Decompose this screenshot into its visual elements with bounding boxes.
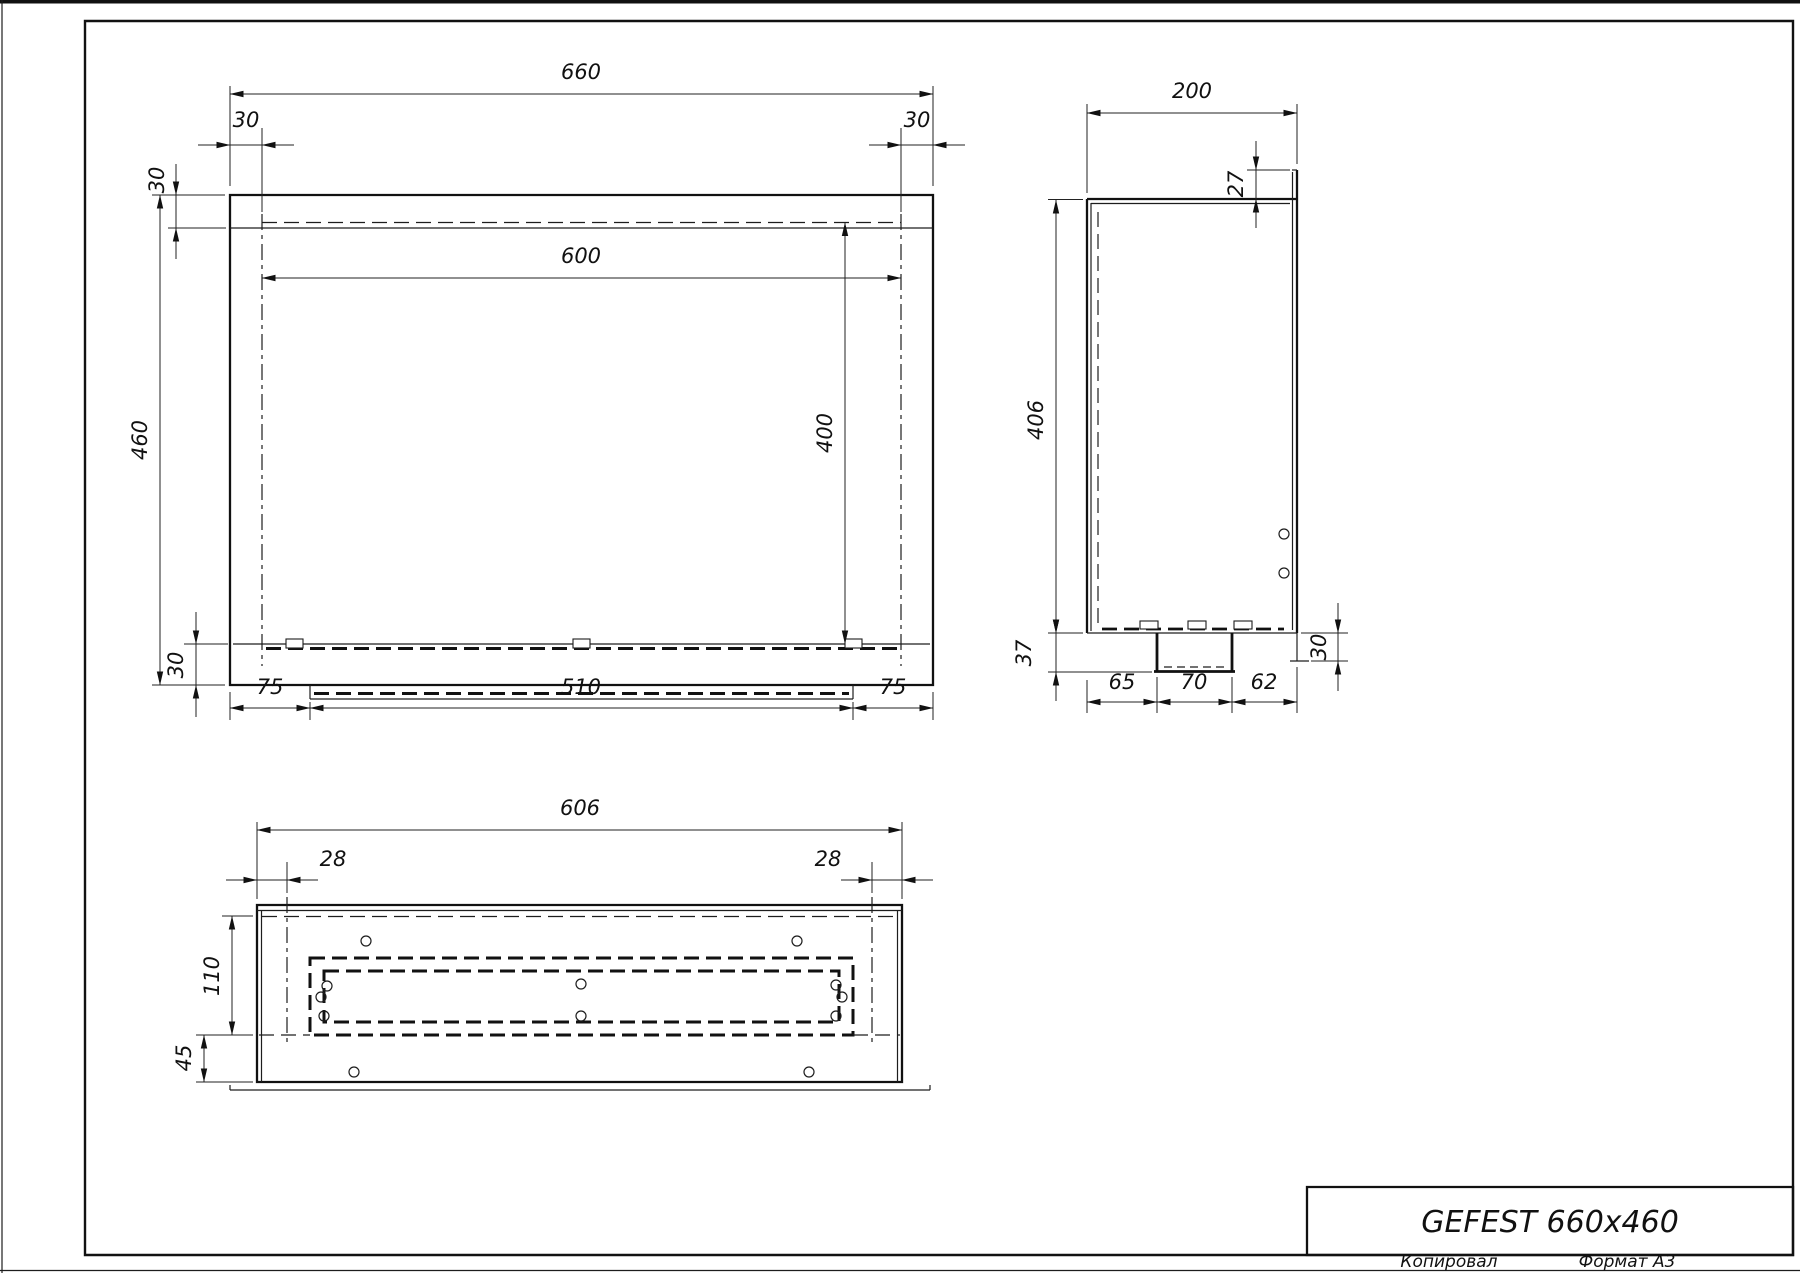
- dim-side-flange-drop: 30: [1307, 634, 1331, 661]
- dim-side-overall-depth: 200: [1172, 79, 1212, 103]
- bottom-extension-lines: [196, 822, 902, 1082]
- front-shelf-tab-left: [286, 639, 303, 648]
- dim-side-lip-height: 27: [1224, 170, 1248, 197]
- side-tab-2: [1188, 621, 1206, 629]
- bottom-dimensions: 606 28 28 110 45: [172, 796, 933, 1082]
- dim-bottom-front-band: 45: [172, 1045, 196, 1072]
- side-hole-lower: [1279, 568, 1289, 578]
- side-view: 200 27 406 37 65 70 62 30: [1012, 79, 1348, 713]
- front-dimensions: 660 30 30 30 600 460 400 30 75: [128, 60, 965, 717]
- front-extension-lines: [152, 86, 933, 720]
- dim-front-opening-width: 600: [561, 244, 601, 268]
- dim-bottom-offset-left: 28: [320, 847, 347, 871]
- dim-bottom-flange-width: 606: [560, 796, 600, 820]
- dim-front-offset-bottom: 30: [164, 652, 188, 679]
- dim-front-tray-width: 510: [561, 675, 601, 699]
- front-view: 660 30 30 30 600 460 400 30 75: [128, 60, 965, 720]
- dim-bottom-opening-depth: 110: [200, 956, 224, 996]
- dim-front-opening-height: 400: [813, 413, 837, 453]
- dim-side-bottom-front: 65: [1109, 670, 1136, 694]
- side-dimensions: 200 27 406 37 65 70 62 30: [1012, 79, 1338, 702]
- dim-front-bottom-left: 75: [257, 675, 284, 699]
- footer-format-label: Формат А3: [1579, 1252, 1676, 1272]
- sheet-top-edge: [0, 0, 1800, 4]
- dim-side-body-height: 406: [1024, 400, 1048, 440]
- front-shelf-tab-right: [845, 639, 862, 648]
- dim-bottom-offset-right: 28: [815, 847, 842, 871]
- front-shelf-tab-center: [573, 639, 590, 648]
- dim-front-bottom-right: 75: [880, 675, 907, 699]
- side-tab-1: [1140, 621, 1158, 629]
- side-tab-3: [1234, 621, 1252, 629]
- drawing-sheet: 660 30 30 30 600 460 400 30 75: [0, 0, 1800, 1273]
- title-block: GEFEST 660x460: [1307, 1187, 1793, 1255]
- footer-copied-label: Копировал: [1400, 1252, 1497, 1272]
- dim-side-bottom-back: 62: [1251, 670, 1278, 694]
- dim-front-offset-top: 30: [145, 167, 169, 194]
- side-hole-upper: [1279, 529, 1289, 539]
- dim-side-tray-depth: 37: [1012, 639, 1036, 666]
- dim-side-tray-width: 70: [1181, 670, 1208, 694]
- dim-front-offset-right: 30: [904, 108, 931, 132]
- drawing-canvas: 660 30 30 30 600 460 400 30 75: [0, 0, 1800, 1273]
- bottom-view: 606 28 28 110 45: [172, 796, 933, 1090]
- dim-front-overall-height: 460: [128, 420, 152, 460]
- title-block-model: GEFEST 660x460: [1421, 1205, 1679, 1240]
- frame-border: [85, 21, 1793, 1255]
- dim-front-offset-left: 30: [233, 108, 260, 132]
- dim-front-overall-width: 660: [561, 60, 601, 84]
- bottom-outline: [257, 905, 902, 1082]
- drawing-frame: [85, 21, 1793, 1255]
